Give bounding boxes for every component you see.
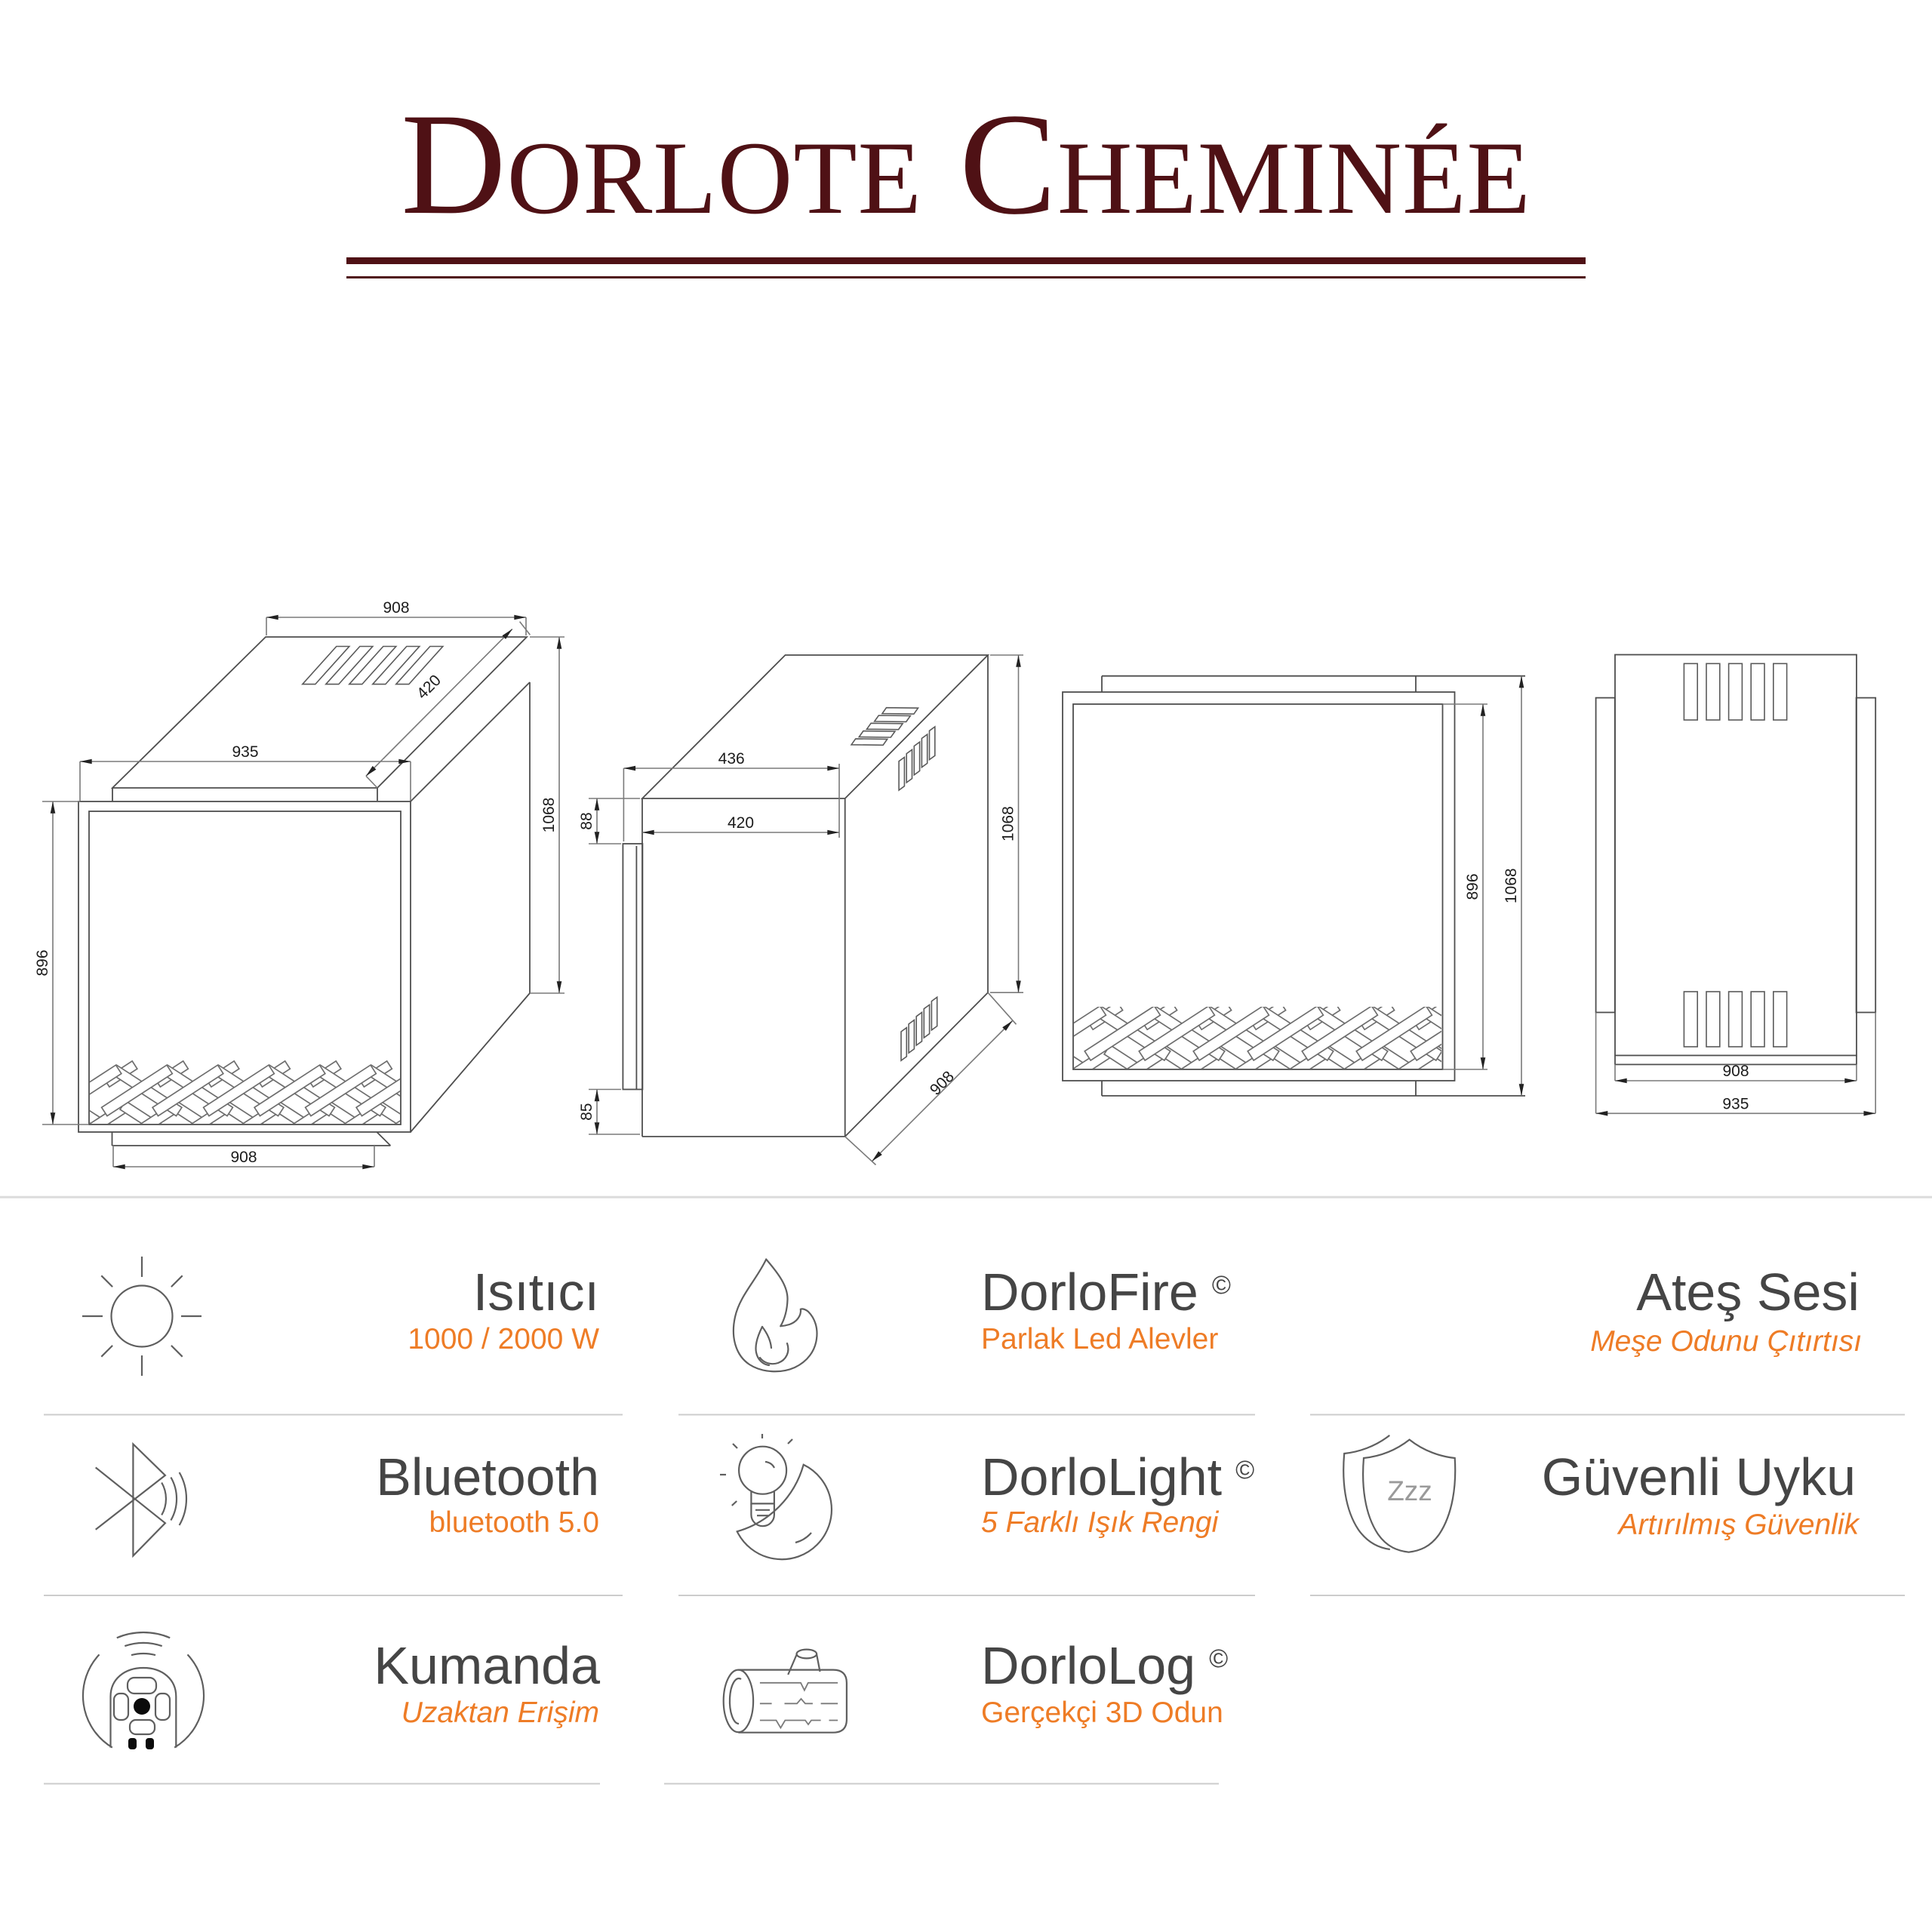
- svg-text:935: 935: [232, 743, 258, 761]
- svg-text:1068: 1068: [1000, 806, 1017, 841]
- svg-text:908: 908: [383, 599, 409, 617]
- svg-text:420: 420: [728, 814, 754, 832]
- svg-text:908: 908: [230, 1149, 257, 1166]
- svg-text:436: 436: [718, 750, 745, 768]
- svg-text:85: 85: [578, 1103, 595, 1121]
- svg-text:1068: 1068: [540, 798, 558, 833]
- svg-text:420: 420: [414, 672, 445, 703]
- svg-text:1068: 1068: [1503, 868, 1520, 903]
- svg-text:88: 88: [578, 812, 595, 829]
- svg-text:908: 908: [1722, 1063, 1749, 1080]
- svg-text:908: 908: [927, 1068, 958, 1099]
- svg-text:896: 896: [1464, 873, 1481, 900]
- svg-text:935: 935: [1722, 1095, 1749, 1112]
- svg-text:Zzz: Zzz: [1387, 1475, 1432, 1506]
- svg-text:896: 896: [34, 949, 51, 976]
